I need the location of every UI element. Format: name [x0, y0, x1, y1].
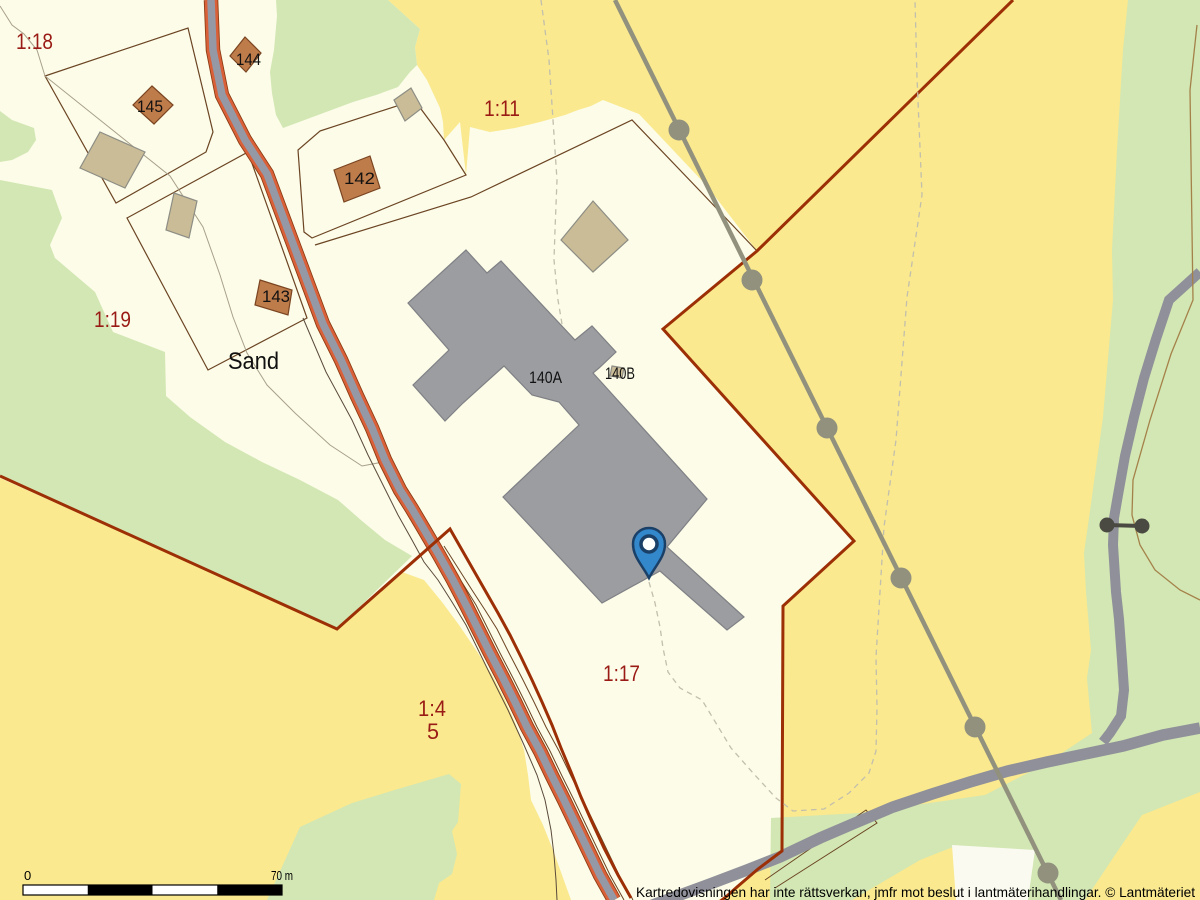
svg-text:143: 143 — [262, 288, 290, 306]
svg-text:1:11: 1:11 — [484, 96, 520, 121]
svg-text:5: 5 — [427, 719, 439, 744]
svg-text:144: 144 — [236, 51, 261, 69]
svg-text:1:18: 1:18 — [16, 29, 53, 54]
svg-text:Sand: Sand — [228, 348, 279, 375]
svg-text:0: 0 — [24, 868, 31, 883]
svg-text:140B: 140B — [605, 365, 635, 383]
svg-text:1:4: 1:4 — [418, 696, 446, 721]
svg-text:145: 145 — [137, 98, 163, 116]
svg-text:70 m: 70 m — [271, 868, 293, 883]
svg-text:Kartredovisningen har inte rät: Kartredovisningen har inte rättsverkan, … — [636, 885, 1195, 900]
svg-text:140A: 140A — [529, 369, 562, 387]
svg-text:1:17: 1:17 — [603, 661, 640, 686]
svg-text:142: 142 — [344, 170, 375, 188]
svg-text:1:19: 1:19 — [94, 307, 131, 332]
